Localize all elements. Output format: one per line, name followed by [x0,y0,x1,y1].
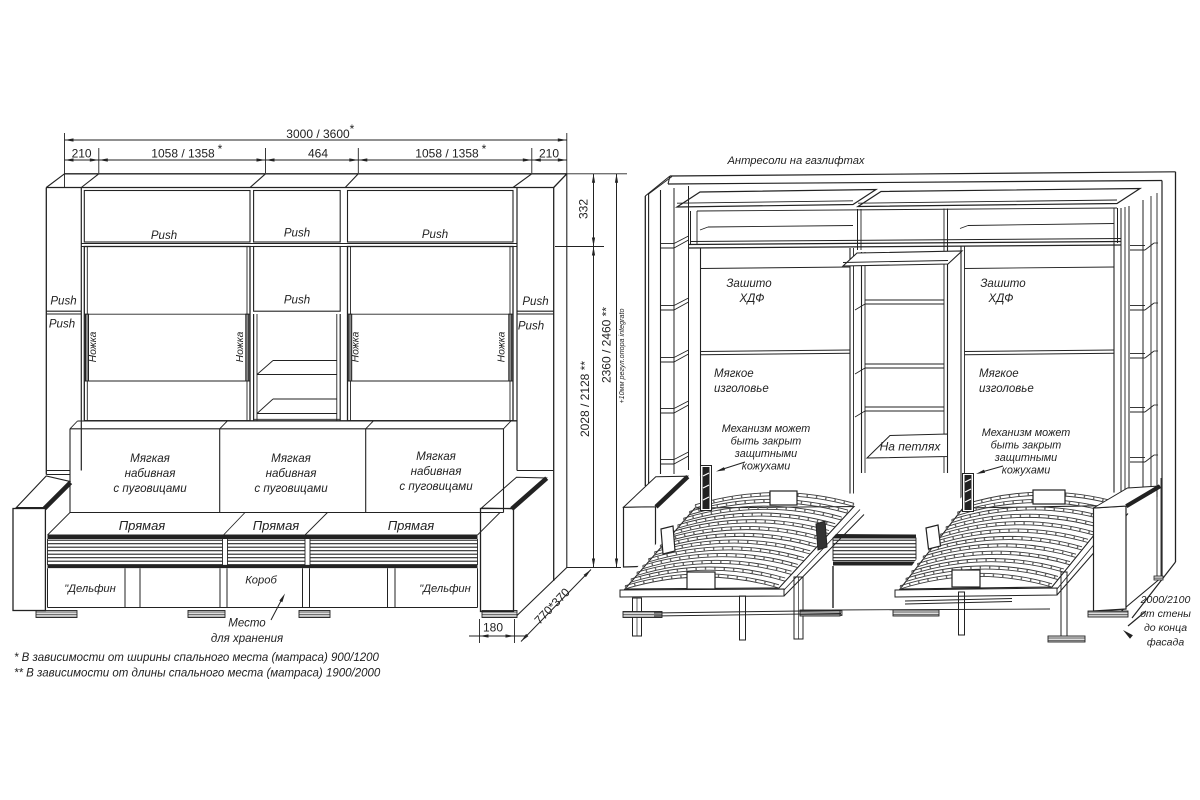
svg-text:изголовье: изголовье [714,383,769,395]
svg-text:*: * [482,142,487,156]
svg-text:Push: Push [49,319,75,331]
svg-text:1058 / 1358: 1058 / 1358 [151,147,215,161]
svg-text:3000 / 3600: 3000 / 3600 [286,127,350,141]
svg-text:с пуговицами: с пуговицами [113,482,187,495]
svg-text:Push: Push [284,228,310,240]
svg-text:464: 464 [308,147,328,161]
svg-text:332: 332 [577,199,591,219]
svg-text:Зашито: Зашито [980,278,1026,290]
svg-text:кожухами: кожухами [1002,465,1051,477]
svg-text:"Дельфин: "Дельфин [419,583,471,595]
svg-text:ХДФ: ХДФ [988,293,1014,305]
svg-text:набивная: набивная [266,467,317,480]
svg-text:*: * [350,122,355,136]
svg-text:Место: Место [228,618,266,630]
svg-text:Мягкое: Мягкое [714,368,754,380]
svg-text:Push: Push [522,296,548,308]
svg-text:до конца: до конца [1144,622,1187,634]
svg-text:+10мм регул.опора integrato: +10мм регул.опора integrato [617,308,626,403]
svg-text:Механизм может: Механизм может [982,427,1071,439]
svg-text:защитными: защитными [734,448,797,460]
svg-text:от стены: от стены [1140,608,1191,620]
svg-text:Push: Push [422,229,448,241]
svg-text:** В зависимости от длины спал: ** В зависимости от длины спального мест… [14,668,381,680]
svg-text:Ножка: Ножка [497,331,508,362]
svg-text:с пуговицами: с пуговицами [254,482,328,495]
svg-text:для хранения: для хранения [211,633,283,645]
svg-text:Push: Push [151,230,177,242]
svg-text:Ножка: Ножка [351,331,362,362]
svg-text:210: 210 [539,147,559,161]
svg-text:Ножка: Ножка [88,331,99,362]
svg-text:быть закрыт: быть закрыт [731,436,802,448]
svg-text:Push: Push [518,321,544,333]
svg-text:Push: Push [50,296,76,308]
svg-text:быть закрыт: быть закрыт [991,440,1062,452]
svg-text:Зашито: Зашито [726,278,772,290]
svg-text:"Дельфин: "Дельфин [64,583,116,595]
svg-text:Мягкая: Мягкая [130,452,170,465]
svg-text:180: 180 [483,621,503,635]
svg-text:Прямая: Прямая [388,518,435,533]
svg-text:Прямая: Прямая [253,518,300,533]
svg-text:Ножка: Ножка [235,331,246,362]
svg-text:На петлях: На петлях [880,440,942,454]
svg-text:Мягкое: Мягкое [979,368,1019,380]
svg-text:набивная: набивная [411,465,462,478]
svg-text:2028 / 2128 **: 2028 / 2128 ** [578,361,592,437]
svg-text:Короб: Короб [245,575,277,587]
svg-text:Прямая: Прямая [119,518,166,533]
svg-text:* В зависимости от ширины спал: * В зависимости от ширины спального мест… [14,652,380,664]
svg-text:защитными: защитными [994,452,1057,464]
svg-text:Мягкая: Мягкая [271,452,311,465]
svg-text:*: * [218,142,223,156]
svg-text:2360 / 2460 **: 2360 / 2460 ** [600,307,614,383]
svg-text:Push: Push [284,295,310,307]
svg-text:1058 / 1358: 1058 / 1358 [415,147,479,161]
svg-text:набивная: набивная [125,467,176,480]
svg-text:Механизм может: Механизм может [722,423,811,435]
svg-text:кожухами: кожухами [742,461,791,473]
svg-text:с пуговицами: с пуговицами [399,480,473,493]
svg-text:ХДФ: ХДФ [739,293,765,305]
svg-text:2000/2100: 2000/2100 [1140,594,1191,606]
svg-text:фасада: фасада [1147,637,1185,649]
svg-text:изголовье: изголовье [979,383,1034,395]
svg-text:210: 210 [72,147,92,161]
svg-text:Антресоли на газлифтах: Антресоли на газлифтах [726,155,864,167]
svg-text:Мягкая: Мягкая [416,450,456,463]
